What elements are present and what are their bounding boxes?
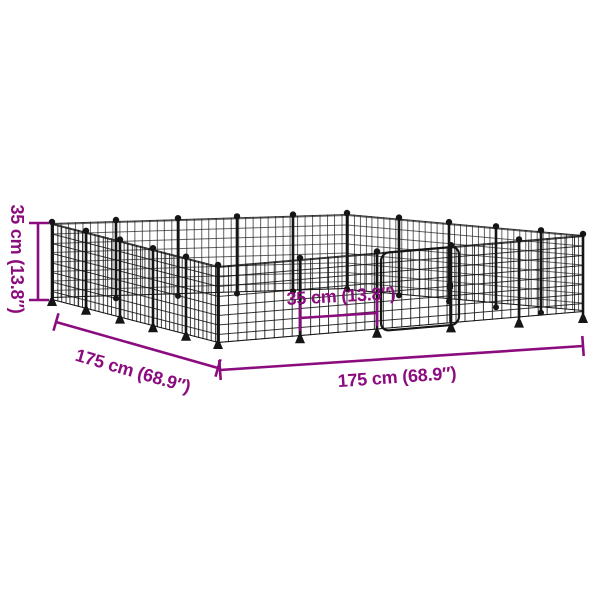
depth-dimension-tick xyxy=(54,313,59,330)
playpen-illustration: 35 cm (13.8″) 175 cm (68.9″) 175 cm (68.… xyxy=(0,0,600,600)
depth-dimension-tick xyxy=(216,359,221,376)
depth-dimension-label: 175 cm (68.9″) xyxy=(67,343,198,400)
product-dimension-diagram: 35 cm (13.8″) 175 cm (68.9″) 175 cm (68.… xyxy=(0,0,600,600)
width-dimension-tick xyxy=(219,360,220,380)
width-dimension-tick xyxy=(582,336,583,356)
width-dimension-label: 175 cm (68.9″) xyxy=(329,361,464,392)
height-dimension-label: 35 cm (13.8″) xyxy=(6,200,28,318)
